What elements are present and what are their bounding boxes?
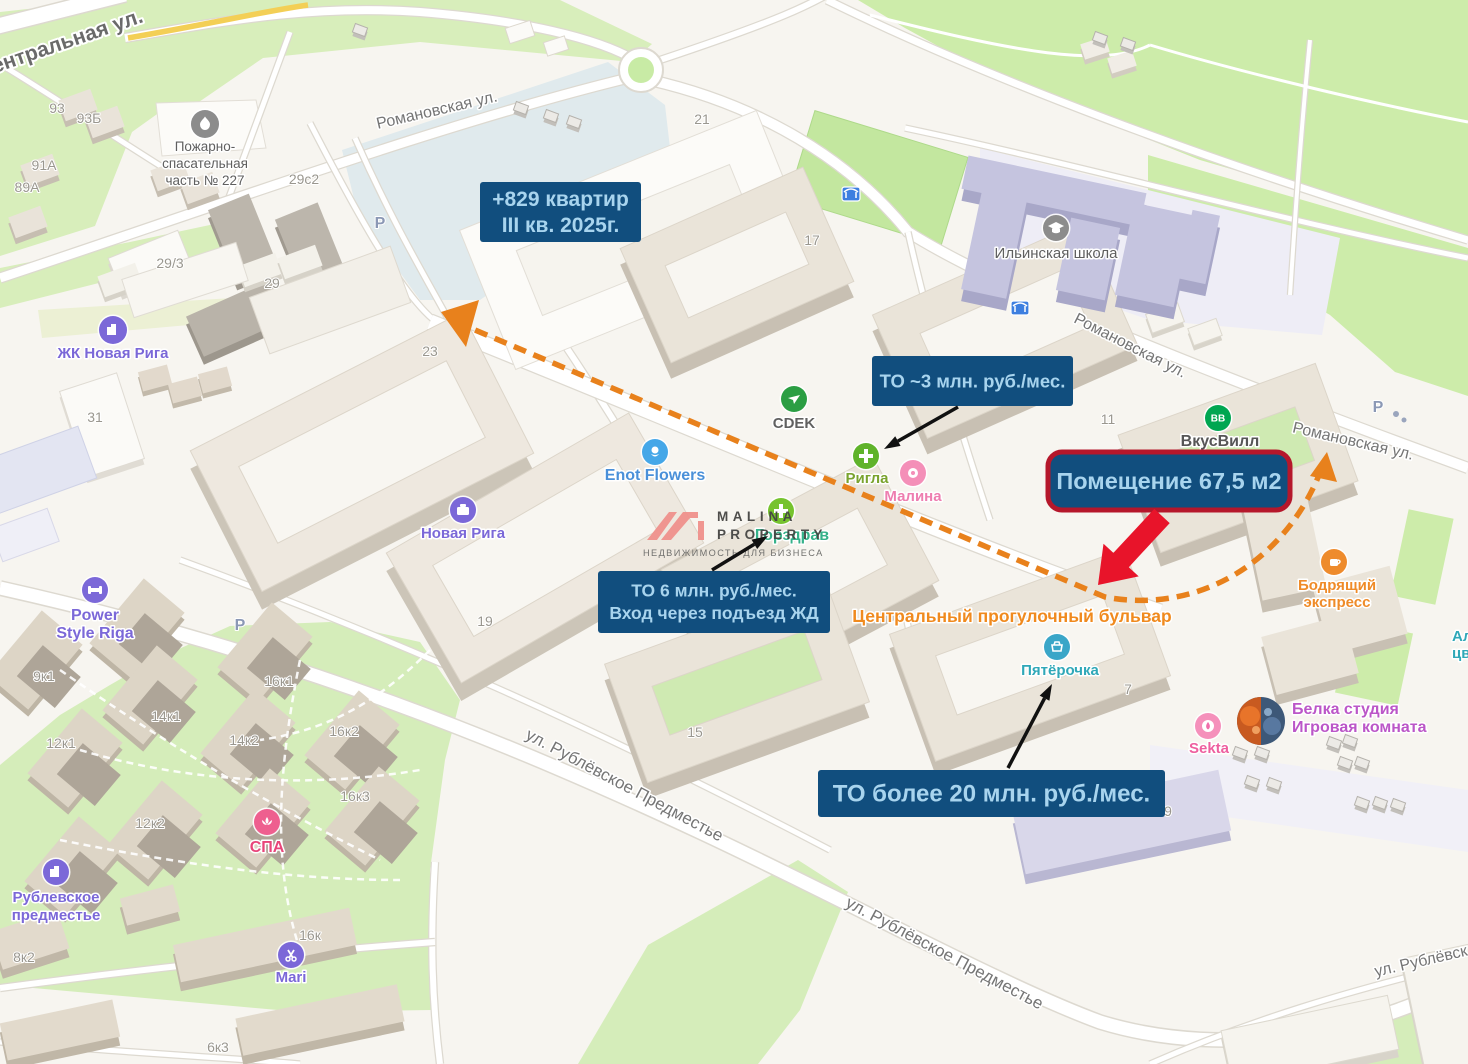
svg-text:Рублевское: Рублевское [13,889,100,906]
svg-text:M A L I N A: M A L I N A [717,509,793,524]
svg-text:6к3: 6к3 [207,1039,229,1055]
svg-text:цв: цв [1452,645,1468,662]
svg-text:ВкусВилл: ВкусВилл [1181,433,1260,450]
svg-text:ТО более 20 млн. руб./мес.: ТО более 20 млн. руб./мес. [833,781,1150,808]
svg-text:P: P [375,215,386,232]
svg-text:Игровая комната: Игровая комната [1292,719,1427,736]
svg-text:Ал: Ал [1452,628,1468,645]
svg-text:16к: 16к [299,927,322,943]
svg-text:16к2: 16к2 [329,723,359,739]
svg-text:11: 11 [1101,411,1116,427]
svg-text:часть № 227: часть № 227 [165,173,244,188]
svg-text:Mari: Mari [276,969,307,986]
svg-text:Пятёрочка: Пятёрочка [1021,662,1099,679]
svg-text:Пожарно-: Пожарно- [175,139,236,154]
svg-text:ЖК Новая Рига: ЖК Новая Рига [57,345,170,362]
svg-text:93Б: 93Б [77,110,102,126]
svg-text:8к2: 8к2 [13,949,35,965]
svg-text:ВВ: ВВ [1211,414,1225,425]
svg-text:Enot Flowers: Enot Flowers [605,467,706,484]
svg-text:Power: Power [71,607,119,624]
svg-text:Ригла: Ригла [846,470,890,487]
svg-text:91А: 91А [32,157,58,173]
svg-text:CDEK: CDEK [773,415,816,432]
svg-text:21: 21 [694,111,710,127]
svg-text:89А: 89А [15,179,41,195]
svg-text:29: 29 [264,275,280,291]
svg-text:P: P [1373,399,1384,416]
svg-text:17: 17 [804,232,820,248]
svg-text:спасательная: спасательная [162,156,248,171]
svg-text:СПА: СПА [250,839,285,856]
svg-text:P R O P E R T Y: P R O P E R T Y [717,527,823,542]
svg-text:9: 9 [1164,803,1172,819]
svg-text:Помещение 67,5 м2: Помещение 67,5 м2 [1056,468,1281,494]
svg-text:16к3: 16к3 [340,788,370,804]
svg-text:ТО 6 млн. руб./мес.: ТО 6 млн. руб./мес. [631,581,796,601]
svg-text:III кв. 2025г.: III кв. 2025г. [502,214,620,237]
svg-text:Новая Рига: Новая Рига [421,525,506,542]
svg-text:31: 31 [87,409,103,425]
svg-text:ТО ~3 млн. руб./мес.: ТО ~3 млн. руб./мес. [880,370,1066,391]
svg-text:15: 15 [687,724,703,740]
svg-text:9к1: 9к1 [33,668,55,684]
svg-text:Малина: Малина [884,488,942,505]
svg-text:29/3: 29/3 [156,255,183,271]
svg-text:23: 23 [422,343,438,359]
svg-text:Style Riga: Style Riga [56,625,133,642]
svg-text:14к2: 14к2 [229,732,259,748]
svg-text:12к2: 12к2 [135,815,165,831]
svg-text:+829 квартир: +829 квартир [492,188,629,211]
svg-text:Вход через подъезд ЖД: Вход через подъезд ЖД [609,603,819,623]
svg-text:Бодрящий: Бодрящий [1298,577,1376,594]
svg-text:29с2: 29с2 [289,171,320,187]
svg-text:Sekta: Sekta [1189,740,1230,757]
svg-text:7: 7 [1124,681,1132,697]
svg-text:19: 19 [477,613,493,629]
svg-text:предместье: предместье [12,907,101,924]
svg-text:12к1: 12к1 [46,735,76,751]
svg-text:Белка студия: Белка студия [1292,701,1399,718]
svg-text:16к1: 16к1 [264,673,294,689]
svg-text:93: 93 [49,100,65,116]
svg-text:Ильинская школа: Ильинская школа [995,245,1119,262]
svg-text:P: P [235,617,246,634]
svg-text:14к1: 14к1 [151,708,181,724]
svg-text:экспресс: экспресс [1304,594,1371,611]
svg-text:Центральный прогулочный бульва: Центральный прогулочный бульвар [852,606,1171,626]
